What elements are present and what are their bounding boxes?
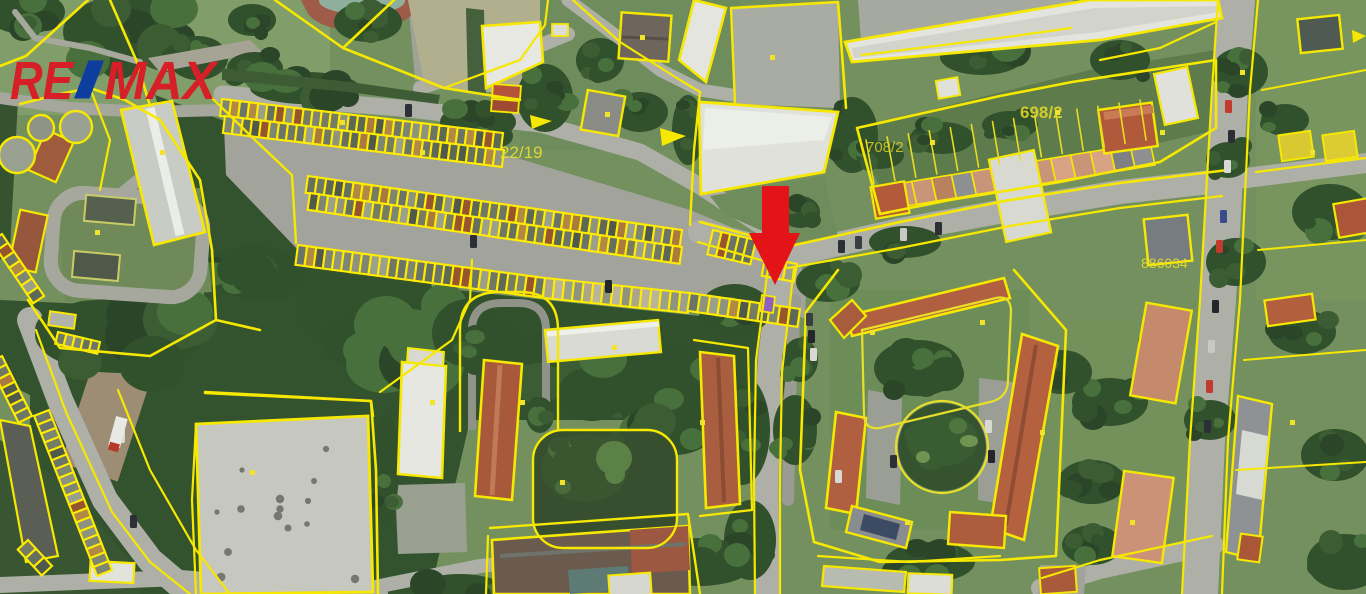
svg-text:RE: RE (10, 50, 75, 111)
svg-text:22/19: 22/19 (500, 143, 543, 162)
svg-text:886034: 886034 (1141, 255, 1188, 271)
svg-text:MAX: MAX (105, 51, 220, 111)
svg-text:708/2: 708/2 (866, 139, 904, 156)
